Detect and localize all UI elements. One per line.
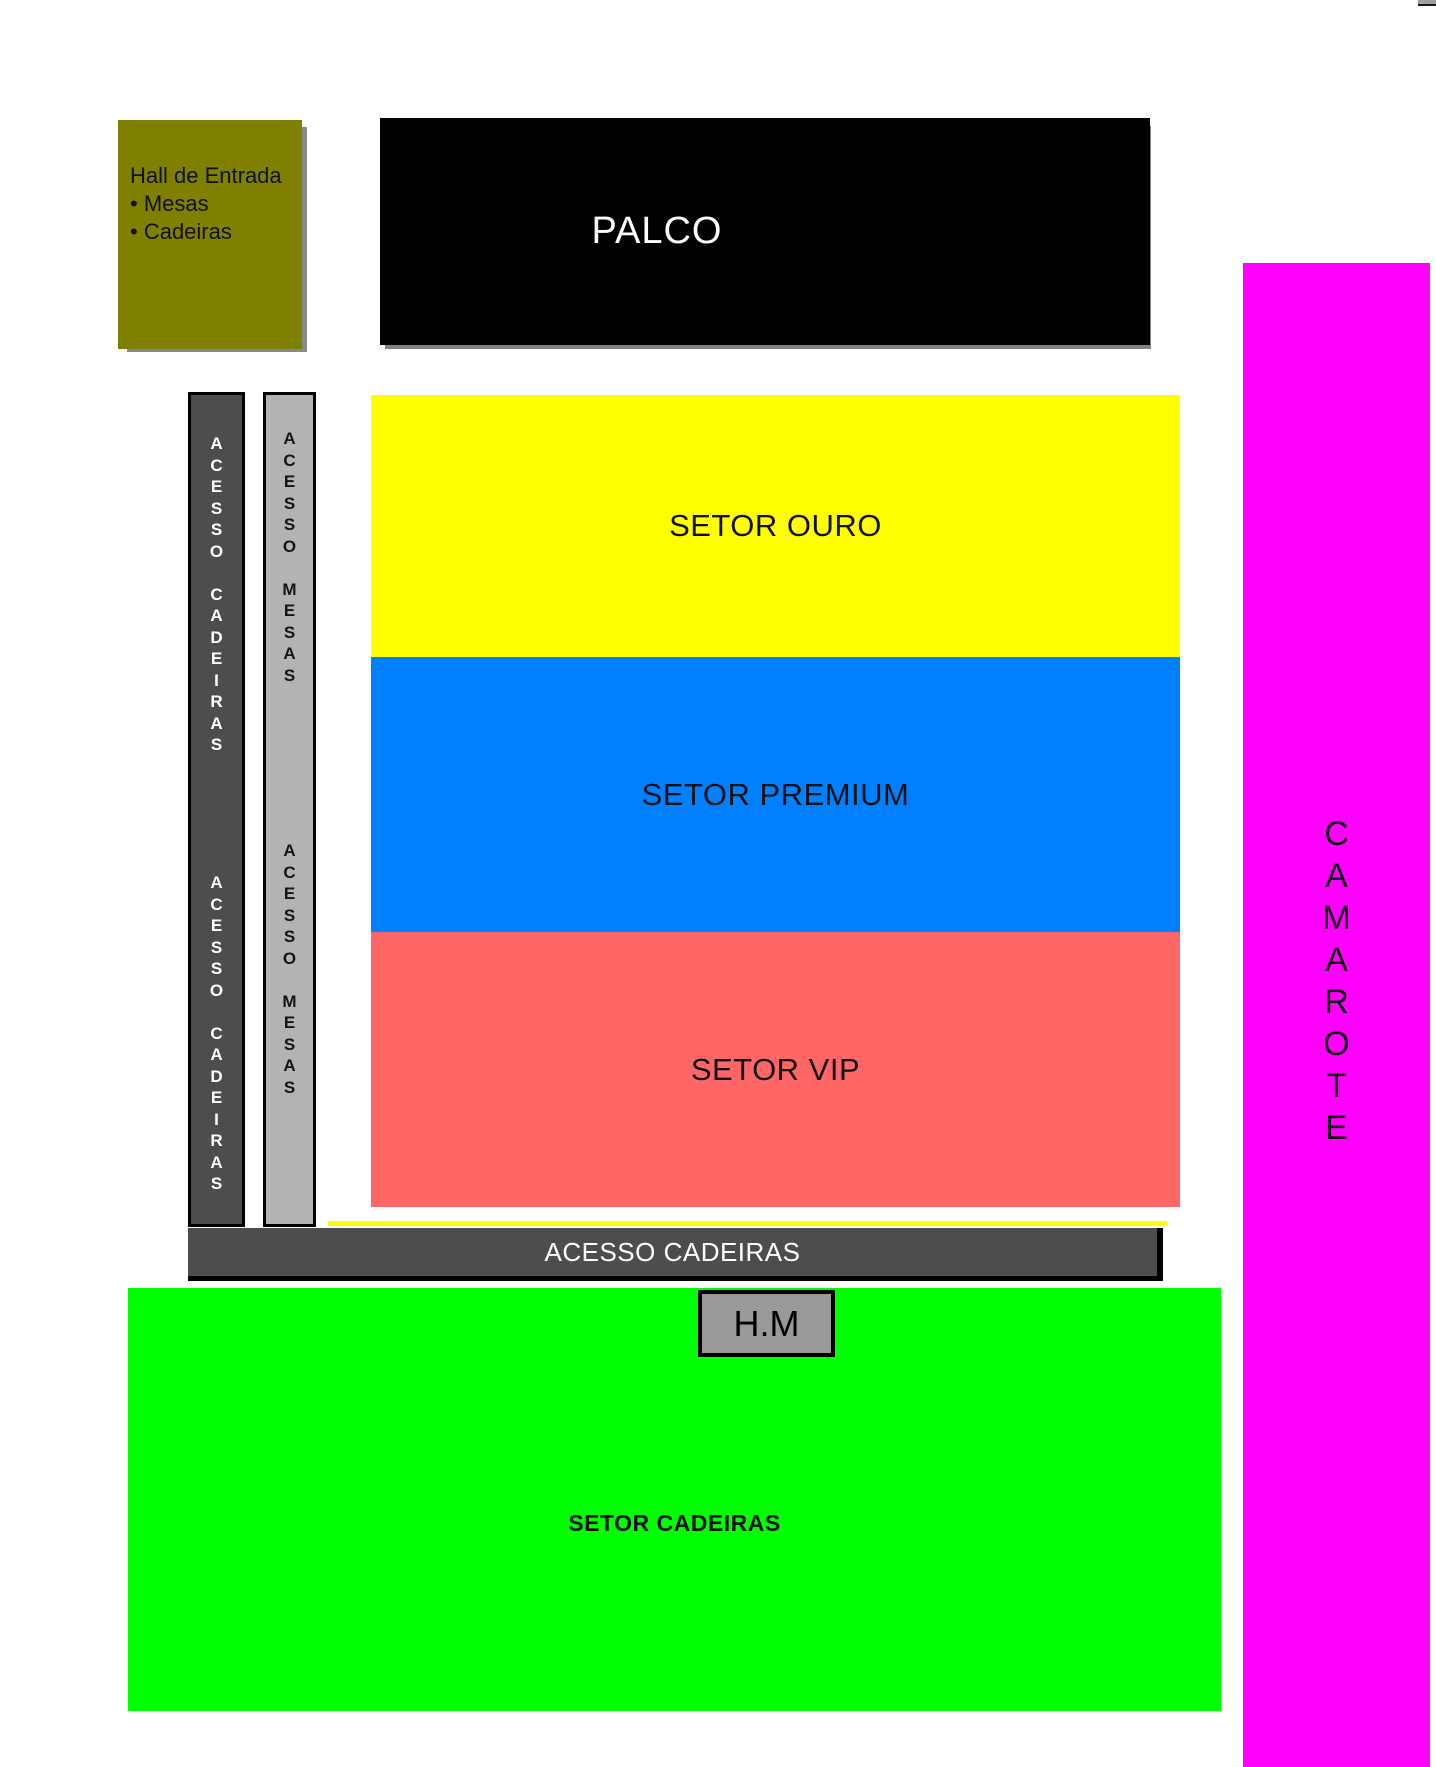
sector-stack: SETOR OURO SETOR PREMIUM SETOR VIP xyxy=(371,395,1180,1207)
corridor-mesas-label-bottom: A C E S S O M E S A S xyxy=(266,840,313,1098)
corridor-cadeiras-label-top: A C E S S O C A D E I R A S xyxy=(191,433,242,756)
venue-map: { "hall": { "text": "Hall de Entrada\n• … xyxy=(0,0,1436,1767)
access-cadeiras-bar-label: ACESSO CADEIRAS xyxy=(544,1237,800,1268)
hall-entrada-box: Hall de Entrada • Mesas • Cadeiras xyxy=(118,120,302,349)
yellow-divider-line xyxy=(328,1221,1167,1226)
stage-label: PALCO xyxy=(591,210,722,253)
sector-ouro: SETOR OURO xyxy=(371,395,1180,657)
sector-cadeiras-label: SETOR CADEIRAS xyxy=(568,1510,780,1537)
hm-box: H.M xyxy=(698,1290,835,1357)
corridor-acesso-cadeiras: A C E S S O C A D E I R A S A C E S S O … xyxy=(188,392,245,1227)
sector-ouro-label: SETOR OURO xyxy=(669,508,882,544)
corridor-mesas-label-top: A C E S S O M E S A S xyxy=(266,428,313,686)
sector-cadeiras: SETOR CADEIRAS xyxy=(128,1288,1221,1711)
sector-vip: SETOR VIP xyxy=(371,932,1180,1207)
corner-scroll-artifact xyxy=(1418,0,1436,6)
stage-box: PALCO xyxy=(380,118,1150,345)
sector-vip-label: SETOR VIP xyxy=(691,1052,860,1088)
sector-premium: SETOR PREMIUM xyxy=(371,657,1180,932)
camarote-box: C A M A R O T E xyxy=(1243,263,1430,1767)
sector-premium-label: SETOR PREMIUM xyxy=(642,777,910,813)
corridor-acesso-mesas: A C E S S O M E S A S A C E S S O M E S … xyxy=(263,392,316,1227)
hm-box-label: H.M xyxy=(734,1303,800,1345)
corridor-cadeiras-label-bottom: A C E S S O C A D E I R A S xyxy=(191,872,242,1195)
access-cadeiras-bar: ACESSO CADEIRAS xyxy=(188,1228,1163,1281)
